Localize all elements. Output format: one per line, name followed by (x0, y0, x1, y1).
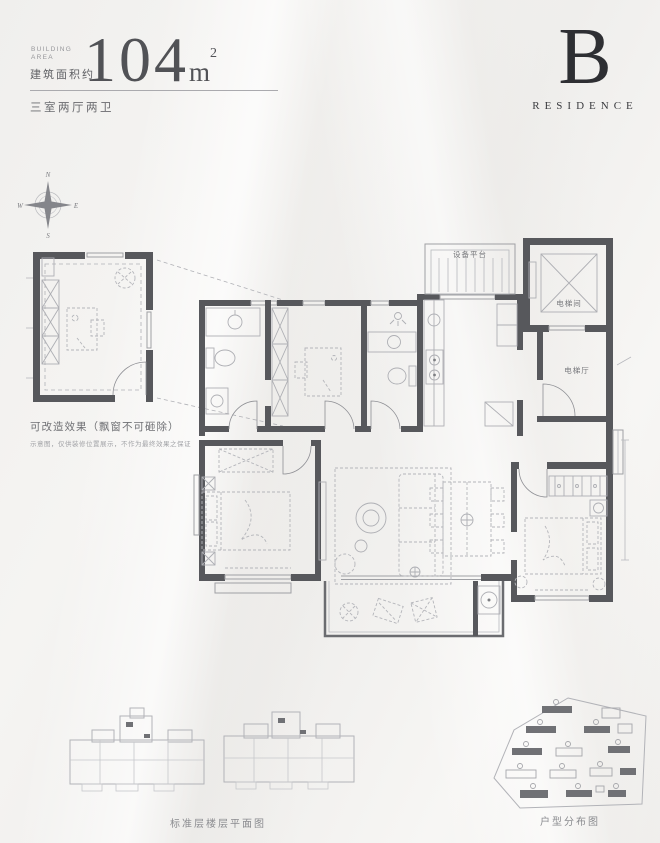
annex-wardrobe (42, 280, 59, 364)
unit-distribution-map (490, 694, 652, 812)
bathroom-2-fixtures (368, 313, 416, 387)
compass-north-label: N (45, 171, 51, 179)
building-outline-left (70, 708, 204, 791)
master-bedroom-furniture (202, 449, 291, 568)
building-area-label-line2: AREA (31, 54, 72, 62)
building-area-label-en: BUILDING AREA (31, 46, 72, 62)
annex-room-plan (26, 252, 153, 402)
area-value: 104m2 (84, 22, 220, 104)
compass-major-star (24, 181, 72, 229)
floor-plan: 设备平台 电梯间 电梯厅 (25, 238, 640, 666)
layout-type: 三室两厅两卫 (30, 99, 114, 115)
area-unit: m (189, 57, 210, 87)
brand-logo: B RESIDENCE (520, 16, 650, 112)
compass-west-label: W (17, 202, 24, 210)
brand-initial: B (520, 16, 650, 98)
building-outline-right (224, 712, 354, 789)
main-unit-plan: 设备平台 电梯间 电梯厅 (194, 238, 640, 636)
annex-note-title: 可改造效果（飘窗不可砸除） (30, 419, 260, 434)
living-room-furniture (319, 468, 451, 584)
dining-furniture (430, 482, 504, 556)
annex-desk (67, 308, 104, 350)
area-number: 104 (84, 24, 189, 95)
brand-name: RESIDENCE (520, 100, 650, 112)
caption-unit-distribution: 户型分布图 (488, 813, 652, 828)
annex-note-disclaimer: 示意图，仅供装修位置展示，不作为最终效果之保证 (30, 438, 260, 448)
annex-plant (115, 268, 135, 288)
bedroom-2-furniture (515, 476, 607, 590)
projection-line-top (157, 260, 283, 300)
compass-rose: N S W E (17, 168, 79, 240)
room-label-equipment-platform: 设备平台 (453, 249, 487, 259)
compass-east-label: E (73, 202, 79, 210)
room-label-elevator-hall: 电梯厅 (564, 365, 590, 375)
standard-floor-plate-diagram (56, 696, 376, 808)
caption-standard-floor-plan: 标准层楼层平面图 (58, 815, 378, 830)
room-label-elevator-shaft: 电梯间 (556, 298, 582, 308)
floorplan-brochure-page: BUILDING AREA 建筑面积约 104m2 三室两厅两卫 B RESID… (0, 0, 660, 843)
area-exponent: 2 (210, 46, 220, 61)
bathroom-1-fixtures (206, 308, 260, 414)
study-furniture (272, 308, 341, 416)
kitchen-fixtures (424, 300, 517, 426)
site-buildings (506, 700, 636, 799)
doors (229, 350, 575, 497)
annex-note: 可改造效果（飘窗不可砸除） 示意图，仅供装修位置展示，不作为最终效果之保证 (30, 419, 260, 448)
header-divider (30, 90, 278, 91)
building-area-label-line1: BUILDING (31, 46, 72, 54)
